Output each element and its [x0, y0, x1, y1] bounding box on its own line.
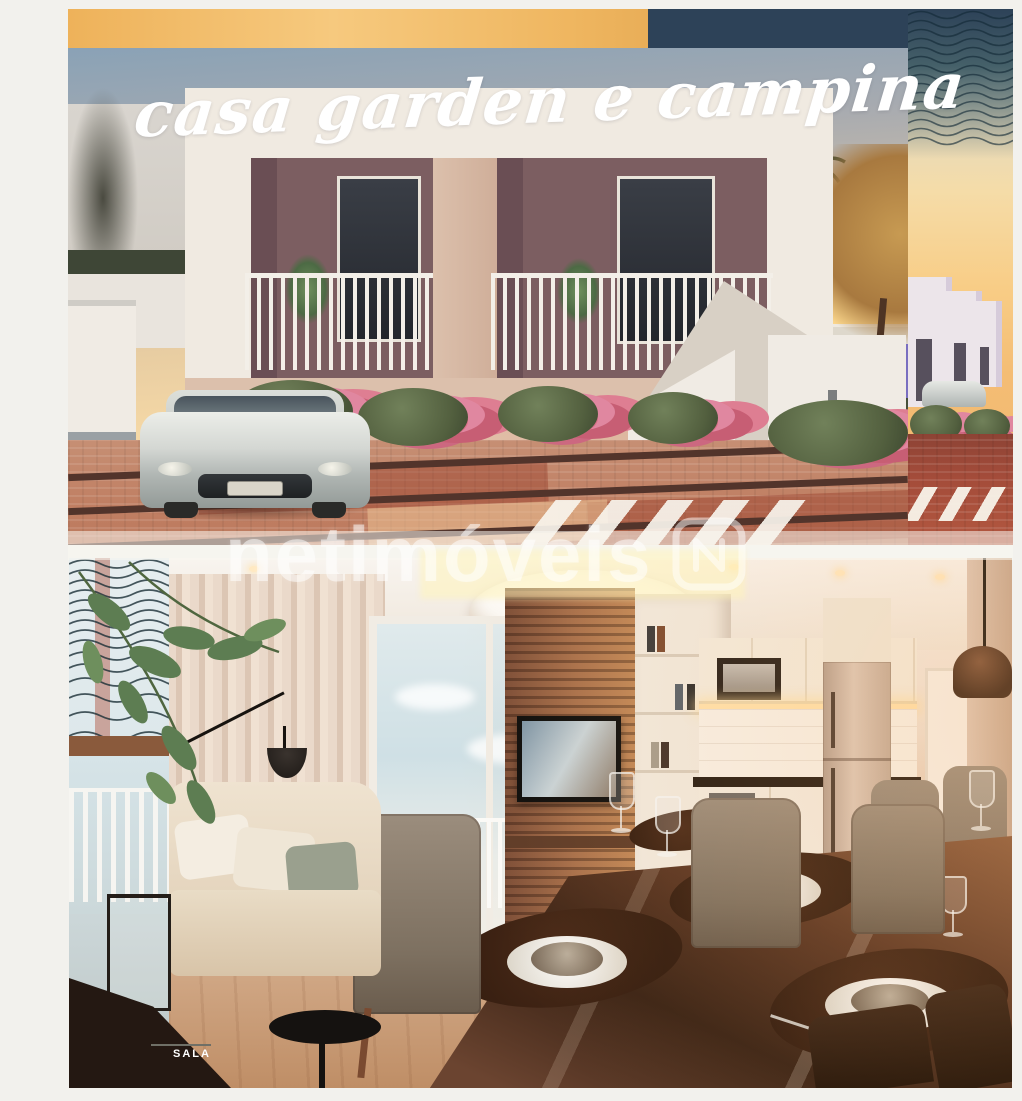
car-wheel	[164, 502, 198, 518]
watermark-text: netimóveis	[225, 509, 652, 600]
microwave	[723, 664, 775, 692]
cabinet-above-fridge	[823, 598, 891, 662]
foreground-chair-back	[806, 1002, 934, 1088]
side-table-top	[269, 1010, 381, 1044]
book	[675, 684, 683, 710]
room-label: SALA	[173, 1048, 211, 1060]
backdrop-orange-band	[68, 9, 658, 50]
car-license-plate	[228, 482, 282, 495]
dining-chair	[691, 798, 801, 948]
rose-bush	[768, 400, 908, 466]
fridge-handle	[831, 768, 835, 858]
recessed-spotlight	[835, 570, 845, 576]
car-headlight	[158, 462, 192, 476]
glass-bowl	[531, 942, 603, 976]
fridge-door-split	[823, 758, 891, 761]
watermark: netimóveis	[225, 498, 825, 610]
strip-parked-car	[922, 381, 986, 407]
netimoveis-logo-icon	[668, 513, 750, 595]
car-headlight	[318, 462, 352, 476]
cloud	[395, 684, 475, 710]
strip-door-slot	[980, 347, 989, 385]
rose-bush	[358, 388, 468, 446]
rose-bush	[498, 386, 598, 442]
balcony-railing	[245, 273, 439, 370]
tv-screen	[522, 721, 616, 797]
fridge-handle	[831, 692, 835, 748]
frame-left-column	[185, 148, 251, 388]
tv	[517, 716, 621, 802]
pendant-lamp-shade	[953, 646, 1012, 698]
book	[661, 742, 669, 768]
balcony-left	[251, 158, 433, 378]
foreground-chair-back	[923, 982, 1012, 1088]
recessed-spotlight	[935, 574, 945, 580]
pendant-lamp-stem	[983, 558, 986, 650]
dining-chair	[851, 804, 945, 934]
book	[657, 626, 665, 652]
interior-photo[interactable]: SALA	[69, 558, 1012, 1088]
side-table	[269, 1010, 381, 1088]
photo-collage-page: casa garden e campina netimóveis	[0, 0, 1022, 1101]
side-table-leg	[319, 1042, 325, 1088]
center-pier	[433, 158, 497, 378]
microwave-niche	[717, 658, 781, 700]
strip-crosswalk	[908, 487, 1013, 521]
room-label-line	[151, 1044, 211, 1046]
book	[687, 684, 695, 710]
book	[647, 626, 655, 652]
eucalyptus-leaves	[69, 558, 299, 932]
media-shelf	[505, 836, 635, 848]
left-wall-wedge	[68, 300, 136, 450]
book	[651, 742, 659, 768]
rose-bush	[628, 392, 718, 444]
